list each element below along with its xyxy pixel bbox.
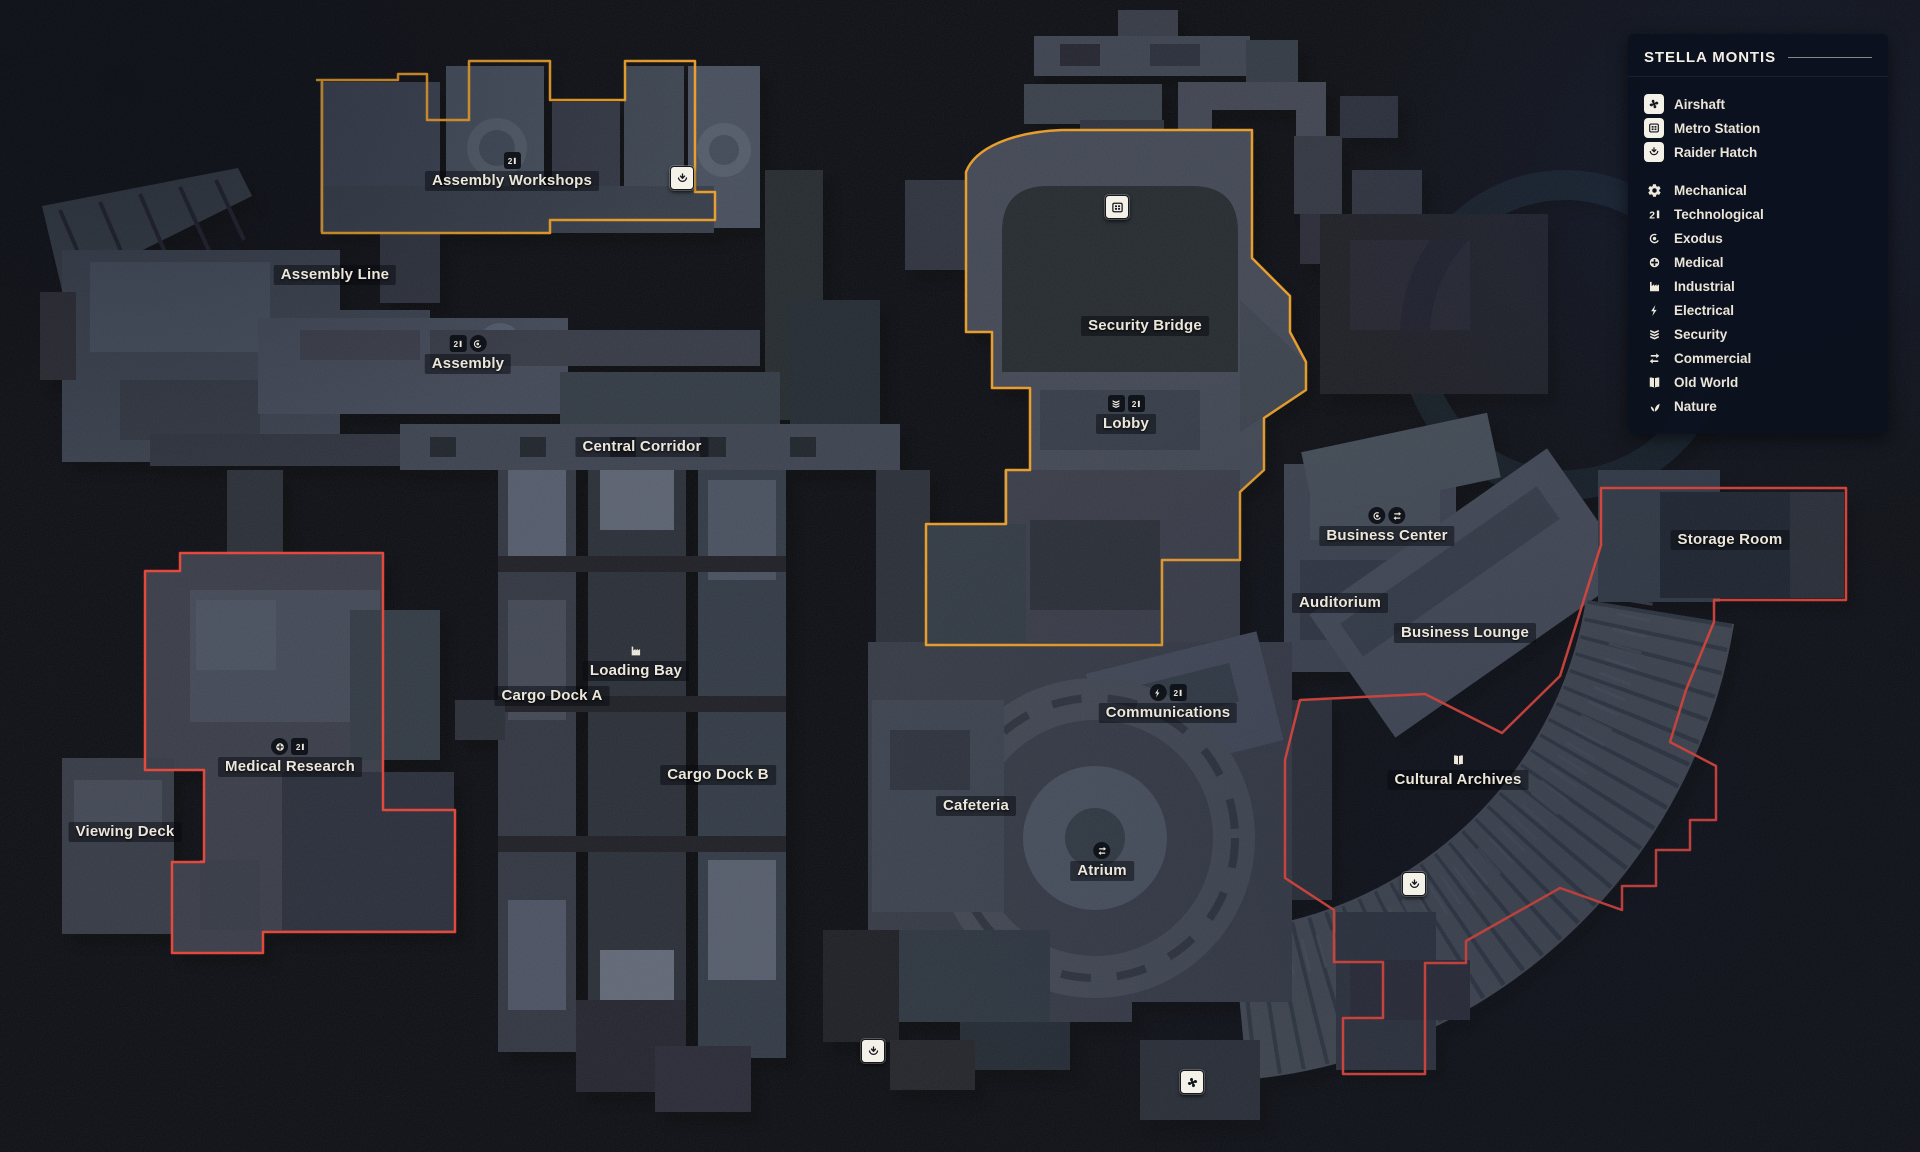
legend-panel: STELLA MONTIS AirshaftMetro StationRaide… — [1628, 34, 1888, 434]
map-screen[interactable]: 2 — [0, 0, 1920, 1152]
legend-district-list: MechanicalTechnologicalExodusMedicalIndu… — [1628, 178, 1888, 418]
legend-item-label: Medical — [1674, 255, 1724, 270]
commercial-icon — [1647, 351, 1662, 366]
security-icon — [1647, 327, 1662, 342]
raider-hatch-marker — [670, 166, 694, 190]
legend-item-label: Nature — [1674, 399, 1717, 414]
legend-item-label: Mechanical — [1674, 183, 1747, 198]
metro-station-icon — [1647, 121, 1661, 135]
legend-item-old-world: Old World — [1644, 370, 1872, 394]
airshaft-marker — [1180, 1070, 1204, 1094]
legend-item-metro-station: Metro Station — [1644, 116, 1872, 140]
legend-item-label: Metro Station — [1674, 121, 1760, 136]
medical-icon — [1647, 255, 1662, 270]
mechanical-icon — [1644, 180, 1664, 200]
legend-divider — [1628, 76, 1888, 77]
legend-special-list: AirshaftMetro StationRaider Hatch — [1628, 92, 1888, 164]
legend-item-commercial: Commercial — [1644, 346, 1872, 370]
legend-item-industrial: Industrial — [1644, 274, 1872, 298]
legend-item-label: Commercial — [1674, 351, 1751, 366]
raider-hatch-icon — [675, 171, 690, 186]
legend-item-technological: Technological — [1644, 202, 1872, 226]
old-world-icon — [1647, 375, 1662, 390]
legend-item-nature: Nature — [1644, 394, 1872, 418]
industrial-icon — [1647, 279, 1662, 294]
legend-item-label: Security — [1674, 327, 1727, 342]
legend-item-exodus: Exodus — [1644, 226, 1872, 250]
map-title: STELLA MONTIS — [1644, 49, 1776, 66]
raider-hatch-marker — [1402, 872, 1426, 896]
legend-item-label: Old World — [1674, 375, 1738, 390]
legend-header: STELLA MONTIS — [1628, 34, 1888, 76]
raider-hatch-marker — [861, 1039, 885, 1063]
legend-item-electrical: Electrical — [1644, 298, 1872, 322]
metro-station-icon — [1644, 118, 1664, 138]
legend-item-mechanical: Mechanical — [1644, 178, 1872, 202]
legend-item-label: Airshaft — [1674, 97, 1725, 112]
technological-icon — [1647, 207, 1662, 222]
legend-item-airshaft: Airshaft — [1644, 92, 1872, 116]
mechanical-icon — [1647, 183, 1662, 198]
legend-item-label: Industrial — [1674, 279, 1735, 294]
legend-item-label: Technological — [1674, 207, 1764, 222]
electrical-icon — [1647, 303, 1662, 318]
metro-station-marker — [1105, 195, 1129, 219]
security-icon — [1644, 324, 1664, 344]
exodus-icon — [1644, 228, 1664, 248]
legend-item-medical: Medical — [1644, 250, 1872, 274]
electrical-icon — [1644, 300, 1664, 320]
raider-hatch-icon — [1644, 142, 1664, 162]
industrial-icon — [1644, 276, 1664, 296]
legend-item-label: Raider Hatch — [1674, 145, 1757, 160]
legend-item-raider-hatch: Raider Hatch — [1644, 140, 1872, 164]
nature-icon — [1644, 396, 1664, 416]
medical-icon — [1644, 252, 1664, 272]
old-world-icon — [1644, 372, 1664, 392]
technological-icon — [1644, 204, 1664, 224]
title-rule — [1788, 57, 1872, 58]
airshaft-icon — [1647, 97, 1661, 111]
raider-hatch-icon — [1647, 145, 1661, 159]
exodus-icon — [1647, 231, 1662, 246]
nature-icon — [1647, 399, 1662, 414]
airshaft-icon — [1185, 1075, 1200, 1090]
raider-hatch-icon — [1407, 877, 1422, 892]
metro-station-icon — [1110, 200, 1125, 215]
raider-hatch-icon — [866, 1044, 881, 1059]
legend-item-label: Exodus — [1674, 231, 1723, 246]
legend-item-security: Security — [1644, 322, 1872, 346]
airshaft-icon — [1644, 94, 1664, 114]
legend-item-label: Electrical — [1674, 303, 1734, 318]
commercial-icon — [1644, 348, 1664, 368]
